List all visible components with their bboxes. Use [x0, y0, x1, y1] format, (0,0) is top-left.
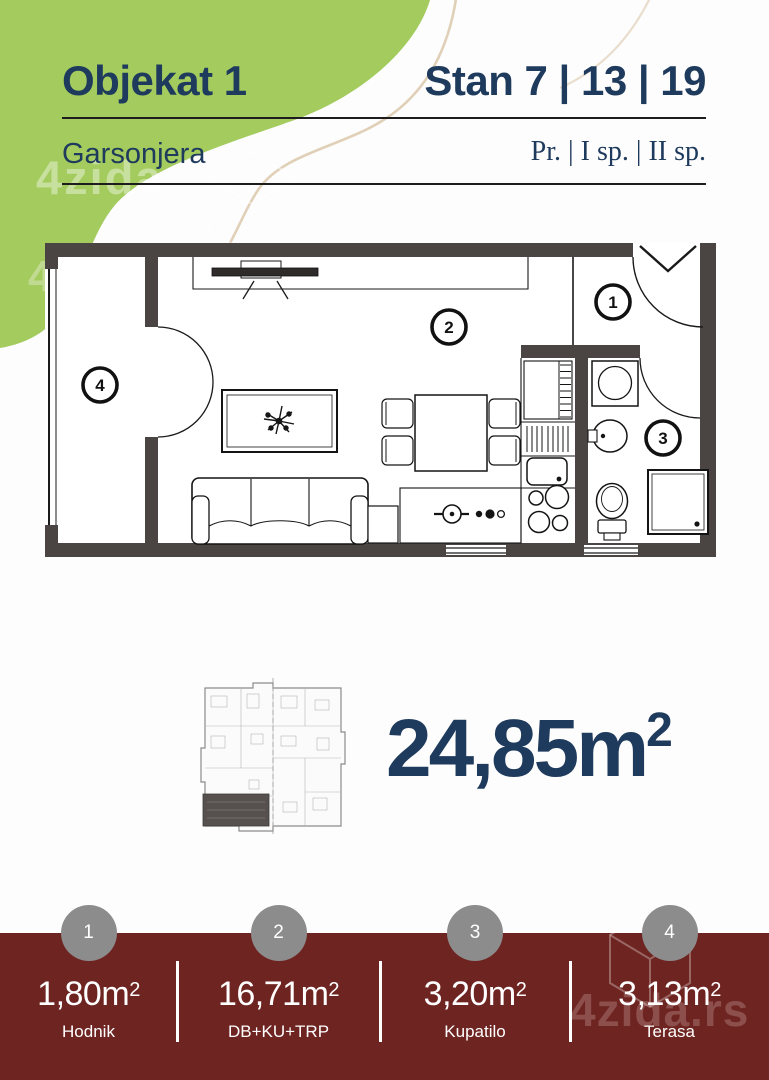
legend-item-terasa: 4 3,13m2 Terasa: [570, 933, 769, 1080]
shower-icon: [648, 470, 708, 534]
svg-text:2: 2: [444, 318, 453, 337]
legend-label: DB+KU+TRP: [177, 1022, 380, 1042]
legend-number-badge: 4: [642, 905, 698, 961]
end-table: [368, 506, 398, 543]
coffee-table: [222, 390, 337, 452]
unit-title: Stan 7 | 13 | 19: [424, 57, 706, 105]
legend-footer: 4zida.rs 1 1,80m2 Hodnik 2 16,71m2 DB+KU…: [0, 933, 769, 1080]
floor-levels: Pr. | I sp. | II sp.: [531, 136, 706, 168]
room-number-1: 1: [596, 285, 630, 319]
legend-label: Hodnik: [0, 1022, 177, 1042]
legend-item-hodnik: 1 1,80m2 Hodnik: [0, 933, 177, 1080]
legend-number-badge: 2: [251, 905, 307, 961]
legend-item-db-ku-trp: 2 16,71m2 DB+KU+TRP: [177, 933, 380, 1080]
sofa: [192, 478, 368, 544]
flyer-page: 4zida 4zida Objekat 1 Stan 7 | 13 | 19 G…: [0, 0, 769, 1080]
total-area-value: 24,85: [386, 703, 576, 794]
total-area: 24,85m2: [386, 702, 673, 796]
apartment-type: Garsonjera: [62, 138, 205, 171]
legend-item-kupatilo: 3 3,20m2 Kupatilo: [380, 933, 570, 1080]
legend-number-badge: 1: [61, 905, 117, 961]
legend-number-badge: 3: [447, 905, 503, 961]
room-number-2: 2: [432, 310, 466, 344]
legend-area: 16,71m2: [177, 975, 380, 1014]
legend-label: Terasa: [570, 1022, 769, 1042]
svg-text:1: 1: [608, 293, 617, 312]
legend-label: Kupatilo: [380, 1022, 570, 1042]
legend-area: 1,80m2: [0, 975, 177, 1014]
svg-text:3: 3: [658, 429, 667, 448]
room-number-3: 3: [646, 421, 680, 455]
project-title: Objekat 1: [62, 57, 247, 105]
kitchen-sink-icon: [527, 458, 567, 485]
washing-machine-icon: [592, 361, 638, 406]
legend-area: 3,20m2: [380, 975, 570, 1014]
header-divider-1: [62, 117, 706, 119]
kitchen-counter: [400, 488, 521, 543]
room-number-4: 4: [83, 368, 117, 402]
header-divider-2: [62, 183, 706, 185]
building-overview-plan: [197, 676, 349, 836]
toilet-icon: [597, 484, 628, 541]
svg-text:4: 4: [95, 376, 105, 395]
legend-area: 3,13m2: [570, 975, 769, 1014]
floor-plan: 1 2 3 4: [0, 230, 769, 565]
highlighted-unit: [203, 794, 269, 826]
